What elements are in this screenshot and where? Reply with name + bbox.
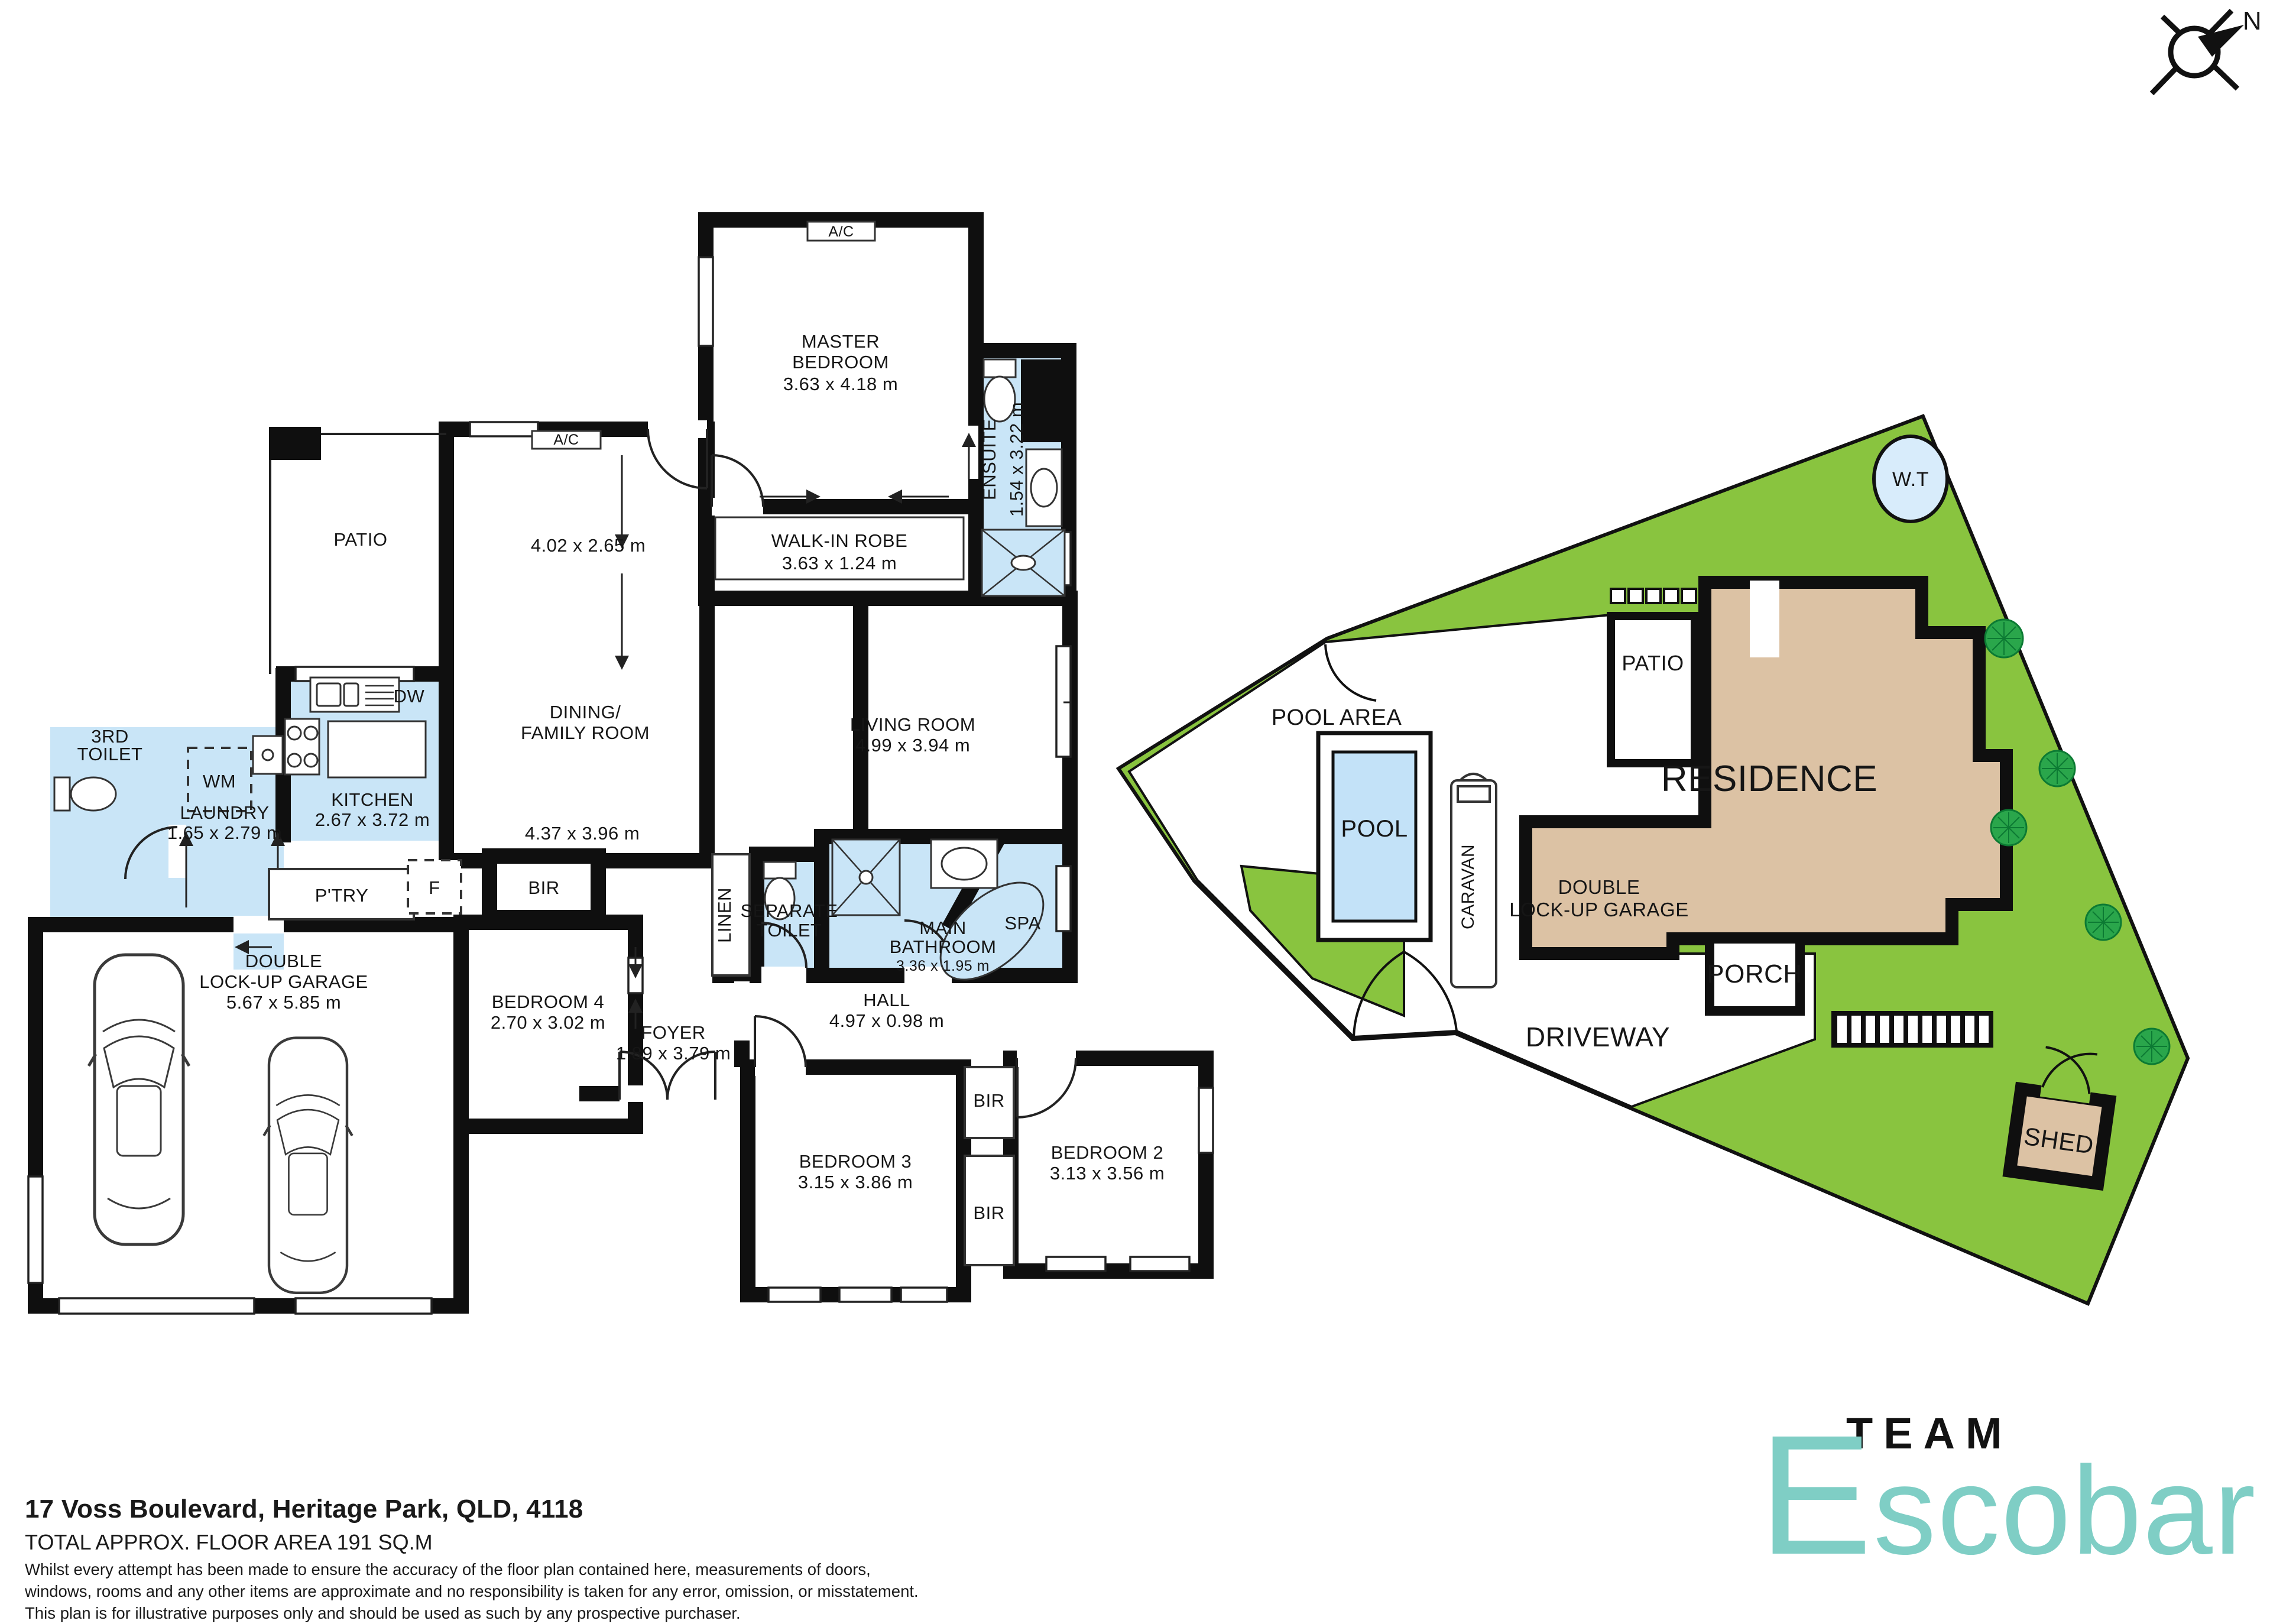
room-label: MAIN: [919, 918, 967, 938]
fixture-label: DW: [394, 686, 425, 706]
room-label: LOCK-UP GARAGE: [199, 971, 368, 992]
floorplan-page: { "compass": { "n": "N" }, "fp": { "ac":…: [0, 0, 2270, 1605]
room-label: TOILET: [77, 744, 143, 764]
car-right: [264, 1038, 352, 1293]
room-dims: 3.63 x 1.24 m: [782, 553, 897, 573]
residence-notch: [1750, 581, 1779, 657]
property-address: 17 Voss Boulevard, Heritage Park, QLD, 4…: [25, 1495, 583, 1524]
room-label: ENSUITE: [979, 419, 1000, 500]
room-label: LINEN: [714, 887, 735, 943]
room-label: BEDROOM 4: [492, 991, 605, 1012]
car-left: [89, 955, 189, 1244]
ensuite-storage-block: [1021, 359, 1069, 442]
area-label: POOL: [1341, 816, 1408, 842]
room-dims: 2.70 x 3.02 m: [491, 1012, 605, 1033]
room-dims: 4.97 x 0.98 m: [829, 1010, 944, 1031]
fixture-label: BIR: [973, 1202, 1004, 1223]
logo-escobar-text: Escobar: [1759, 1419, 2256, 1572]
room-label: MASTER: [802, 331, 880, 352]
room-label: KITCHEN: [331, 789, 414, 810]
logo-initial: E: [1759, 1400, 1873, 1590]
room-dims: 5.67 x 5.85 m: [226, 992, 341, 1013]
north-arrow-icon: N: [2128, 0, 2270, 101]
room-dims: 3.63 x 4.18 m: [783, 374, 898, 394]
room-dims: 2.67 x 3.72 m: [315, 809, 430, 830]
site-patio: [1611, 616, 1695, 763]
area-label: POOL AREA: [1272, 705, 1402, 730]
agency-logo: TEAM Escobar: [1759, 1408, 2270, 1603]
room-dims: 4.02 x 2.65 m: [531, 535, 646, 556]
disclaimer: Whilst every attempt has been made to en…: [25, 1558, 919, 1624]
room-dims: 1.54 x 3.22 m: [1006, 402, 1027, 517]
room-dims: 4.37 x 3.96 m: [525, 823, 640, 844]
fixture-label: BIR: [528, 877, 559, 898]
disclaimer-line: windows, rooms and any other items are a…: [25, 1580, 919, 1602]
room-dims: 3.15 x 3.86 m: [798, 1172, 913, 1192]
room-label: P'TRY: [315, 885, 369, 906]
area-label: DRIVEWAY: [1526, 1022, 1670, 1052]
room-label: BEDROOM 3: [799, 1151, 912, 1172]
fixture-label: BIR: [973, 1090, 1004, 1111]
room-dims: 1.89 x 3.79 m: [616, 1043, 731, 1064]
site-plan: SHED POOL AREA POOL CARAVAN PATIO RESIDE…: [1105, 390, 2258, 1312]
fixture-label: WM: [203, 771, 236, 792]
logo-rest: scobar: [1873, 1440, 2256, 1580]
room-dims: 3.36 x 1.95 m: [896, 958, 990, 974]
floor-area-total: TOTAL APPROX. FLOOR AREA 191 SQ.M: [25, 1530, 433, 1555]
room-label: TOILET: [757, 920, 822, 941]
room-label: SPA: [1004, 913, 1040, 933]
area-label: LOCK-UP GARAGE: [1509, 899, 1688, 920]
room-label: WALK-IN ROBE: [771, 530, 908, 551]
kitchen-island: [328, 721, 426, 777]
room-label: DINING/: [550, 702, 621, 722]
room-label: HALL: [863, 990, 910, 1010]
floor-plan: A/C A/C: [18, 201, 1235, 1324]
room-label: LIVING ROOM: [850, 714, 975, 735]
disclaimer-line: Whilst every attempt has been made to en…: [25, 1558, 919, 1580]
area-label: CARAVAN: [1458, 844, 1478, 929]
fixture-label: F: [429, 877, 440, 898]
patio-outline: [270, 434, 446, 674]
area-label: RESIDENCE: [1661, 758, 1877, 799]
room-label: BEDROOM: [792, 352, 889, 372]
room-label: LAUNDRY: [180, 802, 269, 823]
area-label: PORCH: [1707, 960, 1802, 988]
patio-corner-block: [269, 427, 321, 460]
room-dims: 4.99 x 3.94 m: [855, 735, 970, 756]
room-dims: 1.65 x 2.79 m: [167, 822, 282, 843]
area-label: PATIO: [1622, 651, 1684, 675]
room-label: FAMILY ROOM: [521, 722, 650, 743]
north-label: N: [2243, 7, 2262, 35]
area-label: W.T: [1892, 468, 1929, 491]
ac-label: A/C: [553, 432, 579, 448]
room-label: FOYER: [641, 1022, 705, 1043]
ac-label: A/C: [828, 223, 854, 240]
area-label: DOUBLE: [1558, 876, 1640, 898]
room-label: BATHROOM: [890, 936, 997, 957]
room-label: DOUBLE: [245, 951, 322, 971]
room-label: PATIO: [334, 529, 388, 550]
room-label: SEPARATE: [741, 900, 838, 921]
deck-slats: [1831, 1011, 1993, 1048]
disclaimer-line: This plan is for illustrative purposes o…: [25, 1602, 919, 1624]
